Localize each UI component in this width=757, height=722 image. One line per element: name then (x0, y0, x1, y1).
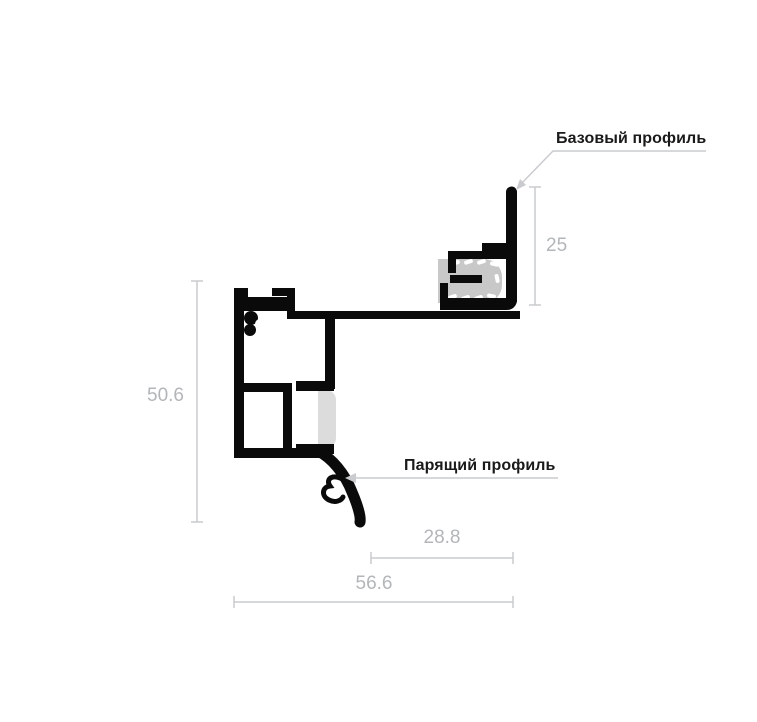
base-profile-label: Базовый профиль (556, 131, 706, 147)
profile-cross-section-drawing (0, 0, 757, 722)
hook-barb (323, 477, 344, 502)
dim-25-value: 25 (546, 236, 567, 256)
dim-28-8-line (371, 552, 513, 564)
base-profile-leader (520, 151, 706, 185)
floating-profile-hook (318, 451, 360, 522)
screw-boss-notch (255, 319, 265, 329)
leader-arrows (345, 179, 526, 483)
floating-profile-body (234, 288, 520, 458)
dim-50-6-value: 50.6 (124, 386, 184, 406)
dim-50-6-line (191, 281, 203, 522)
technical-drawing-canvas: Базовый профиль Парящий профиль 25 50.6 … (0, 0, 757, 722)
floating-profile-label: Парящий профиль (404, 458, 555, 474)
dim-25-line (529, 187, 541, 305)
clip-insert (318, 390, 336, 448)
dim-28-8-value: 28.8 (412, 528, 472, 548)
dim-56-6-value: 56.6 (344, 574, 404, 594)
dim-56-6-line (234, 596, 513, 608)
